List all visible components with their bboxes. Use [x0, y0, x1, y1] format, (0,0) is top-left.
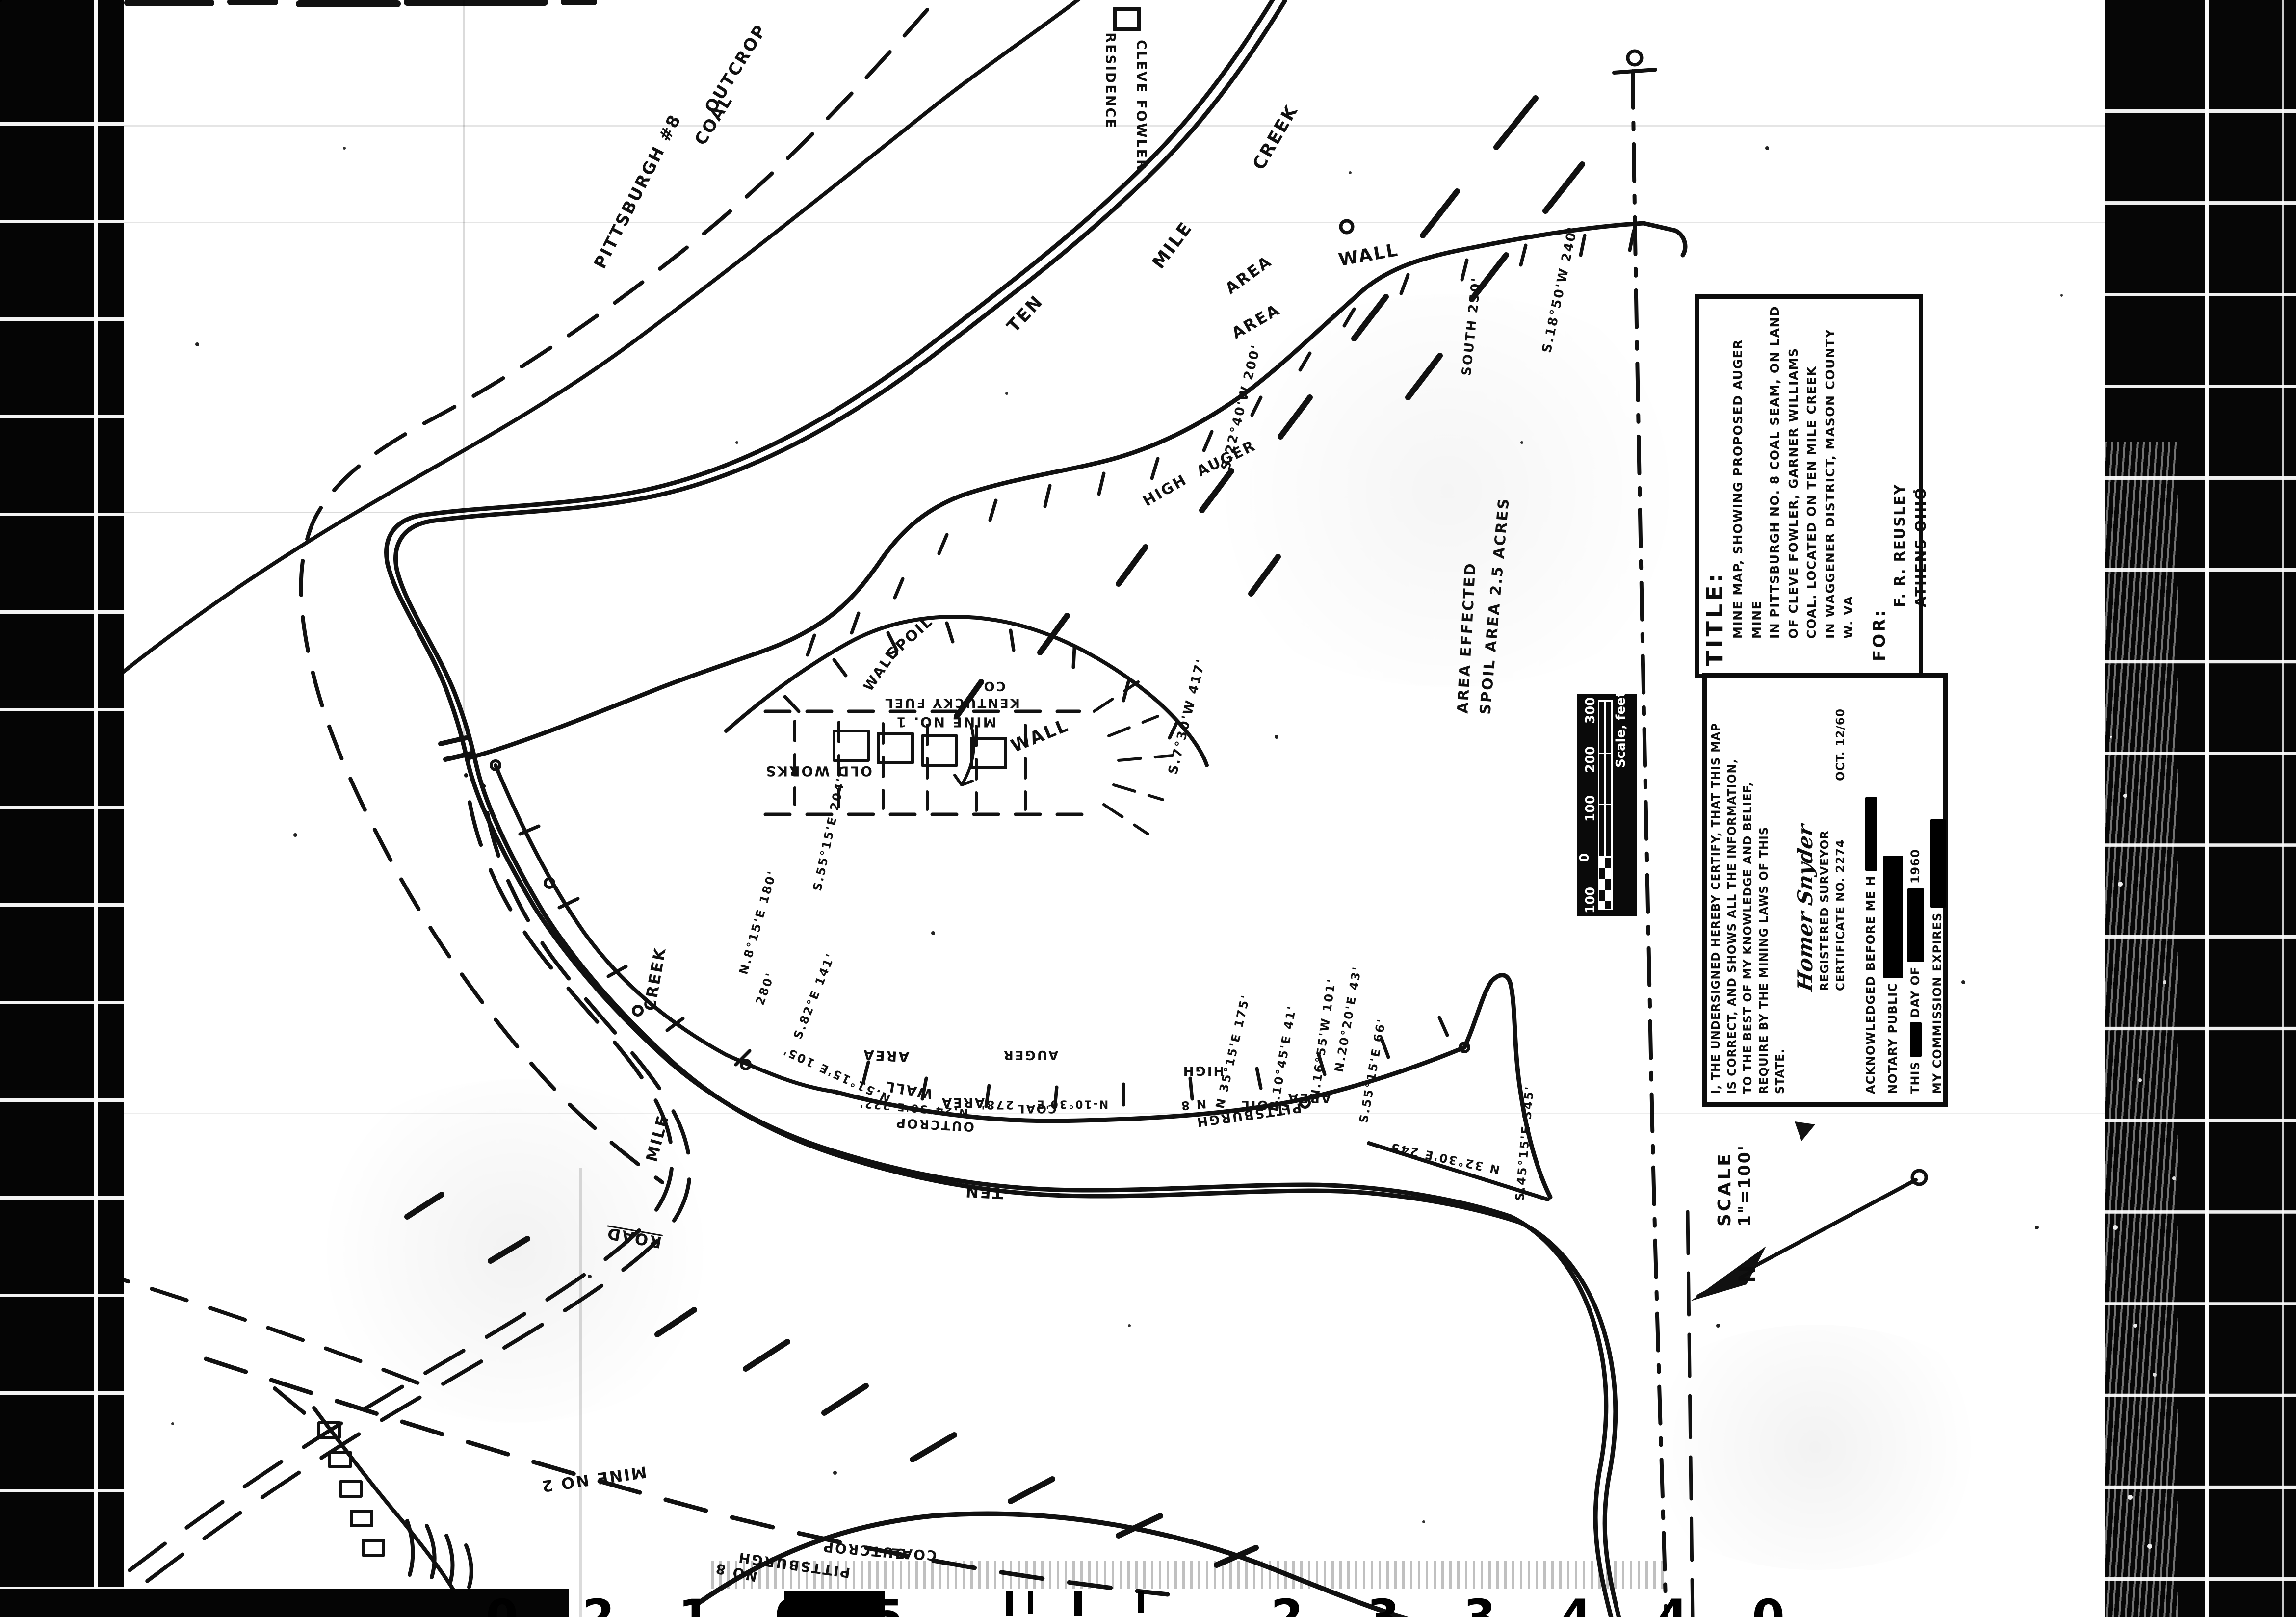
- scale-note-ratio: 1"=100': [1735, 1128, 1754, 1226]
- title-line: IN PITTSBURGH NO. 8 COAL SEAM, ON LAND: [1766, 298, 1784, 639]
- scale-tick: 0: [1577, 853, 1592, 862]
- film-speckles: [2110, 736, 2112, 738]
- map-label: N-10°30'E: [1036, 1098, 1109, 1110]
- film-edge-erosion: [2105, 442, 2178, 1617]
- scanned-mine-map-page: PITTSBURGH #8COALOUTCROPTENMILECREEKRESI…: [0, 0, 2296, 1617]
- film-scratch: [0, 222, 2296, 223]
- day-of-word: DAY OF: [1908, 966, 1922, 1018]
- film-scratch: [0, 125, 2296, 127]
- road-line: [74, 775, 690, 1617]
- cert-line: STATE.: [1773, 677, 1789, 1094]
- cert-line: I, THE UNDERSIGNED HEREBY CERTIFY, THAT …: [1708, 677, 1724, 1094]
- year-text: 1960: [1908, 849, 1922, 884]
- film-frame-number-strip: 0 2 1 0 5 2 3 3 4 4 0: [0, 1588, 2296, 1617]
- scale-bar-ruler: [1598, 700, 1613, 859]
- scale-bar: 300 200 100 0 100 Scale, feet: [1577, 694, 1637, 916]
- film-top-smears: [128, 2, 594, 4]
- film-mark: [1138, 1591, 1144, 1613]
- film-mark: [1028, 1591, 1033, 1614]
- film-scratch-vertical: [2282, 0, 2284, 1617]
- scale-tick: 200: [1583, 746, 1598, 773]
- scale-bar-checker: [1605, 856, 1613, 910]
- commission-expires: MY COMMISSION EXPIRES: [1931, 913, 1944, 1094]
- for-label: FOR:: [1870, 298, 1889, 661]
- scale-note-word: SCALE: [1715, 1128, 1735, 1226]
- title-line: OF CLEVE FOWLER, GARNER WILLIAMS: [1784, 298, 1803, 639]
- client-name: F. R. REUSLEY: [1889, 298, 1911, 607]
- certificate-date: OCT. 12/60: [1834, 708, 1847, 781]
- notary-signature-smear: [1883, 856, 1903, 978]
- surveyor-title: REGISTERED SURVEYOR: [1817, 677, 1833, 991]
- dashed-line-bottom: [206, 1359, 1168, 1594]
- certification-text: I, THE UNDERSIGNED HEREBY CERTIFY, THAT …: [1708, 677, 1934, 1094]
- map-label: TEN: [964, 1182, 1003, 1202]
- surveyor-signature: Homer Snyder: [1793, 675, 1817, 993]
- acknowledged-text: ACKNOWLEDGED BEFORE ME H: [1864, 876, 1878, 1094]
- scale-tick: 300: [1583, 697, 1598, 724]
- mine-no2-works: [275, 1388, 471, 1594]
- scale-tick: 100: [1583, 887, 1598, 913]
- ten-mile-creek-line: [387, 0, 1621, 1617]
- map-label: AREA: [940, 1095, 985, 1110]
- film-noise-band: [711, 1561, 1668, 1589]
- film-frame-number: 2 3 3 4 4 0: [1271, 1590, 1808, 1617]
- title-heading: TITLE:: [1701, 298, 1728, 666]
- title-block-text: TITLE: MINE MAP, SHOWING PROPOSED AUGER …: [1698, 298, 1910, 666]
- cert-line: REQUIRE BY THE MINING LAWS OF THIS: [1756, 677, 1773, 1094]
- map-label: AREA: [861, 1046, 910, 1065]
- scale-tick: 100: [1583, 795, 1598, 822]
- film-scratch-vertical: [94, 0, 98, 1617]
- slope-dashes-lower: [407, 1195, 1256, 1565]
- title-line: IN WAGGENER DISTRICT, MASON COUNTY: [1821, 298, 1840, 639]
- cert-line: TO THE BEST OF MY KNOWLEDGE AND BELIEF,: [1740, 677, 1756, 1094]
- client-city: ATHENS OHIO: [1910, 298, 1932, 607]
- map-label: MINE NO. 1: [895, 714, 996, 730]
- notary-label: NOTARY PUBLIC: [1886, 983, 1900, 1094]
- certificate-number: CERTIFICATE NO. 2274: [1834, 839, 1847, 991]
- hachure-ticks-bottom: [863, 1017, 1447, 1108]
- month-smear: [1907, 888, 1924, 962]
- dashed-line-bottom-2: [93, 1271, 432, 1388]
- expiry-smear: [1930, 819, 1946, 908]
- scale-bar-caption: Scale, feet: [1614, 691, 1628, 768]
- acknowledged-line: ACKNOWLEDGED BEFORE ME H NOTARY PUBLIC T…: [1860, 677, 1949, 1094]
- title-line: W. VA: [1839, 298, 1858, 639]
- title-line: COAL. LOCATED ON TEN MILE CREEK: [1802, 298, 1821, 639]
- map-label: HIGH: [1182, 1063, 1225, 1078]
- scale-note: SCALE 1"=100': [1715, 1128, 1771, 1226]
- day-smear: [1910, 1022, 1922, 1057]
- paper-crease: [463, 0, 465, 736]
- film-mark: [1006, 1591, 1013, 1616]
- map-label: N 8: [1179, 1097, 1207, 1113]
- film-mark: [1074, 1591, 1082, 1616]
- north-label: N: [1734, 1265, 1760, 1284]
- map-label: OLD WORKS: [764, 763, 872, 780]
- film-edge-left: [0, 0, 124, 1617]
- hachure-ticks-top: [808, 231, 1634, 655]
- this-word: THIS: [1908, 1061, 1922, 1094]
- map-label: CO.: [976, 678, 1006, 693]
- paper-crease: [579, 1168, 582, 1617]
- map-label: RESIDENCE: [1103, 32, 1118, 129]
- dust-speckles: [0, 0, 2, 2]
- map-label: AUGER: [1002, 1047, 1059, 1062]
- film-blot: [784, 1591, 885, 1617]
- handwriting-smear: [1865, 797, 1877, 871]
- map-label: 278': [980, 1098, 1014, 1112]
- film-scratch-vertical: [2205, 0, 2209, 1617]
- certificate-number-line: CERTIFICATE NO. 2274 OCT. 12/60: [1833, 677, 1849, 991]
- film-scratch: [0, 1113, 2296, 1114]
- highwall-arc: [726, 617, 1207, 765]
- map-label: CLEVE FOWLER: [1134, 40, 1149, 171]
- cert-line: IS CORRECT, AND SHOWS ALL THE INFORMATIO…: [1724, 677, 1741, 1094]
- title-line: MINE MAP, SHOWING PROPOSED AUGER MINE: [1729, 298, 1766, 639]
- section-line-2: [1688, 1212, 1693, 1617]
- house-symbol: [1115, 9, 1139, 29]
- map-label: KENTUCKY FUEL: [884, 695, 1020, 710]
- mine-map-drawing: [0, 0, 2296, 1617]
